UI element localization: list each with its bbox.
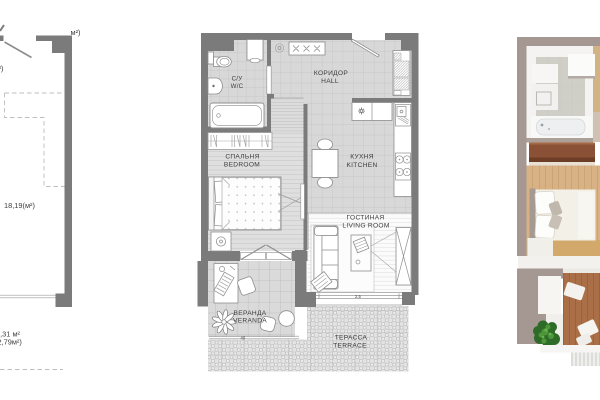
svg-text:(2,79м²): (2,79м²) (0, 338, 22, 347)
svg-text:КУХНЯ: КУХНЯ (350, 154, 374, 161)
svg-text:KITCHEN: KITCHEN (346, 162, 377, 169)
svg-text:КОРИДОР: КОРИДОР (314, 70, 348, 77)
svg-text:ТЕРАССА: ТЕРАССА (335, 335, 368, 342)
svg-text:HALL: HALL (321, 78, 339, 85)
svg-text:BEDROOM: BEDROOM (224, 162, 260, 169)
svg-text:18,19(м²): 18,19(м²) (4, 201, 35, 210)
svg-text:м²): м²) (0, 64, 4, 73)
svg-text:W/C: W/C (231, 83, 244, 90)
svg-text:LIVING ROOM: LIVING ROOM (342, 223, 389, 230)
svg-text:ВЕРАНДА: ВЕРАНДА (234, 310, 267, 317)
svg-text:ГОСТИНАЯ: ГОСТИНАЯ (347, 215, 385, 222)
svg-text:40: 40 (241, 336, 246, 341)
svg-text:VERANDA: VERANDA (233, 318, 267, 325)
svg-text:С/У: С/У (232, 76, 243, 83)
svg-text:СПАЛЬНЯ: СПАЛЬНЯ (225, 154, 259, 161)
svg-text:2,5: 2,5 (355, 294, 361, 299)
svg-text:м²): м²) (70, 28, 80, 37)
svg-text:TERRACE: TERRACE (333, 343, 367, 350)
